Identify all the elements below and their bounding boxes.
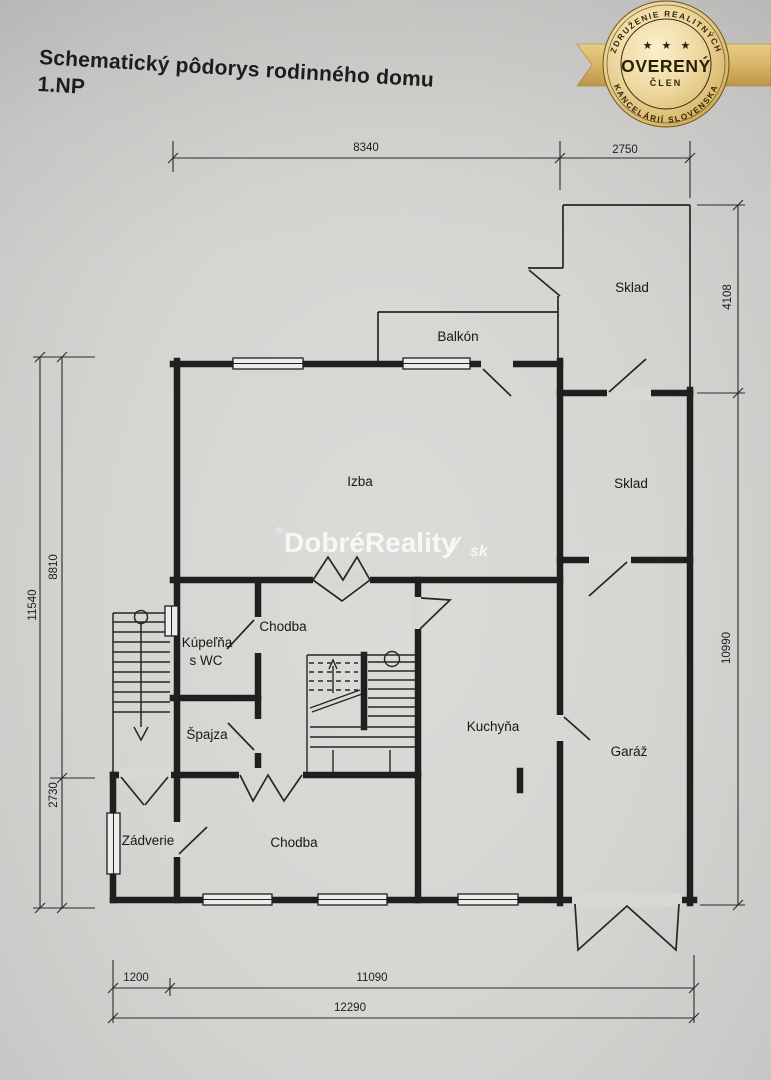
room-label-kupelna-line1: Kúpeľňa bbox=[182, 635, 233, 650]
watermark-brand: DobréReality bbox=[284, 527, 457, 558]
dim-bottom-total: 12290 bbox=[334, 1002, 366, 1014]
dim-left-bottom: 2730 bbox=[48, 782, 60, 808]
room-label-sklad-horny: Sklad bbox=[615, 280, 649, 295]
windows bbox=[107, 358, 518, 905]
room-label-balkon: Balkón bbox=[437, 329, 478, 344]
dim-top-right: 2750 bbox=[612, 144, 638, 156]
scanned-floorplan-page: Schematický pôdorys rodinného domu 1.NP bbox=[0, 0, 771, 1080]
verified-badge: ZDRUŽENIE REALITNÝCH KANCELÁRIÍ SLOVENSK… bbox=[555, 0, 771, 145]
watermark-reg-symbol: ® bbox=[276, 526, 284, 537]
dim-bottom-offset: 1200 bbox=[123, 972, 149, 984]
walls-thick bbox=[113, 361, 694, 903]
dim-right-bottom: 10990 bbox=[721, 632, 733, 664]
dim-bottom-main: 11090 bbox=[356, 972, 387, 984]
floor-plan-drawing: 8340 2750 4108 10990 11540 8810 2730 120… bbox=[0, 0, 771, 1080]
outdoor-stairs bbox=[113, 611, 170, 776]
room-label-kuchyna: Kuchyňa bbox=[467, 719, 520, 734]
dim-left-outer: 11540 bbox=[27, 589, 39, 620]
room-label-chodba-dolna: Chodba bbox=[270, 835, 318, 850]
room-label-spajza: Špajza bbox=[186, 727, 228, 742]
room-label-zadverie: Zádverie bbox=[122, 833, 175, 848]
dim-left-top: 8810 bbox=[48, 554, 60, 580]
badge-stars-icon: ★ ★ ★ bbox=[643, 40, 694, 52]
dim-right-top: 4108 bbox=[722, 284, 734, 310]
wall-openings bbox=[119, 357, 682, 907]
room-label-izba: Izba bbox=[347, 474, 373, 489]
room-label-garaz: Garáž bbox=[611, 744, 648, 759]
room-label-chodba-horna: Chodba bbox=[259, 619, 307, 634]
watermark-tld: sk bbox=[470, 543, 489, 560]
watermark: ® DobréReality ∕ sk bbox=[276, 526, 489, 562]
badge-sub-text: ČLEN bbox=[650, 77, 683, 88]
badge-medallion: ZDRUŽENIE REALITNÝCH KANCELÁRIÍ SLOVENSK… bbox=[603, 1, 729, 127]
dim-top-main: 8340 bbox=[353, 142, 379, 154]
room-label-kupelna-line2: s WC bbox=[190, 653, 223, 668]
badge-main-text: OVERENÝ bbox=[621, 55, 711, 76]
room-label-sklad-stredny: Sklad bbox=[614, 476, 648, 491]
